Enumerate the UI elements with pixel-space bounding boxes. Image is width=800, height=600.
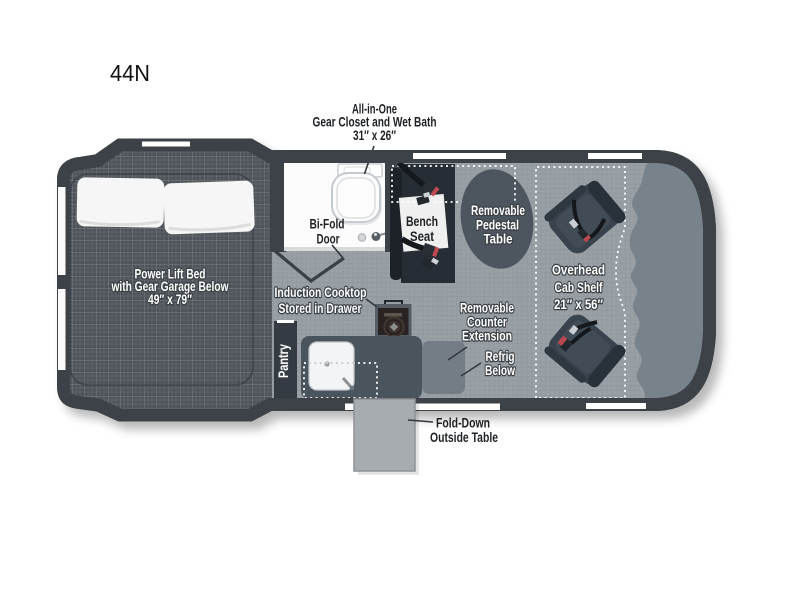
svg-text:Overhead: Overhead: [552, 262, 605, 278]
svg-text:Seat: Seat: [410, 228, 434, 244]
svg-text:44N: 44N: [110, 60, 150, 86]
svg-text:Below: Below: [485, 362, 515, 378]
svg-text:Bi-Fold: Bi-Fold: [310, 216, 345, 232]
svg-text:Door: Door: [317, 231, 340, 247]
svg-text:Stored in Drawer: Stored in Drawer: [279, 300, 362, 316]
svg-text:Table: Table: [484, 231, 513, 247]
svg-text:Bench: Bench: [406, 213, 438, 229]
svg-text:Pantry: Pantry: [275, 344, 291, 378]
svg-text:Cab Shelf: Cab Shelf: [555, 279, 603, 295]
svg-text:Induction Cooktop: Induction Cooktop: [275, 284, 367, 300]
svg-text:Outside Table: Outside Table: [430, 429, 498, 445]
svg-text:Extension: Extension: [462, 328, 512, 344]
svg-text:31″ x 26″: 31″ x 26″: [353, 127, 396, 143]
svg-text:49″ x 79″: 49″ x 79″: [148, 291, 192, 307]
svg-text:21″ x 56″: 21″ x 56″: [554, 296, 603, 312]
